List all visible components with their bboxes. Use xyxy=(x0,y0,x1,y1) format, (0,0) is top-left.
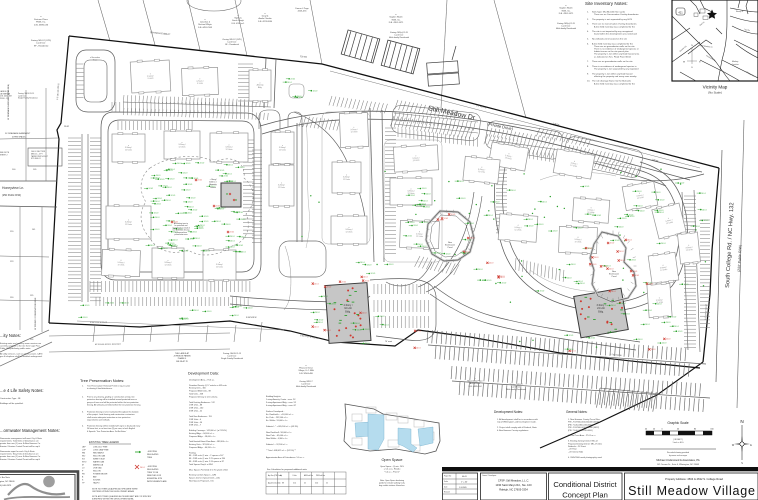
svg-text:24 LO: 24 LO xyxy=(167,187,172,189)
svg-text:9 Units: 9 Units xyxy=(197,82,203,85)
svg-text:24 LO: 24 LO xyxy=(659,210,664,212)
svg-text:du: du xyxy=(280,475,282,477)
svg-text:Single Family Residence: Single Family Residence xyxy=(18,98,38,100)
svg-text:24 LO: 24 LO xyxy=(571,264,576,266)
svg-text:12 Units: 12 Units xyxy=(574,240,581,243)
svg-text:24 LO: 24 LO xyxy=(633,271,638,273)
svg-text:Stormwater: Stormwater xyxy=(609,273,620,276)
svg-text:Public Utility Authority publi: Public Utility Authority public water. xyxy=(0,347,31,350)
svg-text:Michael Underwood & Associates: Michael Underwood & Associates, PA xyxy=(656,458,699,462)
svg-text:Stormwater: Stormwater xyxy=(445,244,456,247)
svg-text:Building Coverage - 142,000 s.: Building Coverage - 142,000 s.f. (= 212.… xyxy=(189,430,227,432)
svg-text:24 LO: 24 LO xyxy=(155,201,160,203)
svg-text:Proposed Density = 12.4 units/: Proposed Density = 12.4 units/ac. xyxy=(189,396,218,399)
svg-text:12 Units: 12 Units xyxy=(343,178,350,181)
svg-text:Zoning: MD-12 (CZD): Zoning: MD-12 (CZD) xyxy=(31,40,51,42)
svg-text:requirements and methods.: requirements and methods. xyxy=(87,419,110,422)
svg-text:Open Space - @ min. 20%: Open Space - @ min. 20% xyxy=(380,466,404,468)
svg-text:12 Units: 12 Units xyxy=(125,148,132,151)
svg-text:24 LO: 24 LO xyxy=(170,169,175,171)
svg-text:3 BR Units - 7: 3 BR Units - 7 xyxy=(189,424,201,427)
svg-text:( IN FEET ): ( IN FEET ) xyxy=(673,439,683,441)
svg-text:There are no groundwater wells: There are no groundwater wells on the si… xyxy=(594,45,635,48)
svg-text:24 LO: 24 LO xyxy=(609,268,614,270)
svg-text:Still Meadow Village: Still Meadow Village xyxy=(628,484,756,498)
svg-text:Village, LLC 4NA: Village, LLC 4NA xyxy=(298,369,314,372)
svg-text:= 5.4 ac (+ Req'd.): = 5.4 ac (+ Req'd.) xyxy=(384,469,401,471)
svg-text:24 LO: 24 LO xyxy=(85,305,90,307)
svg-text:Monkey: Monkey xyxy=(732,61,738,63)
svg-text:24 LO: 24 LO xyxy=(228,164,233,166)
svg-text:24 LO: 24 LO xyxy=(205,251,210,253)
svg-text:24 LO: 24 LO xyxy=(638,206,643,208)
svg-text:24 LO: 24 LO xyxy=(621,303,626,305)
svg-text:The site is not impacted by an: The site is not impacted by any recogniz… xyxy=(592,30,633,33)
svg-text:Existing Units - 321,400 s.f.+: Existing Units - 321,400 s.f.+- xyxy=(189,443,215,446)
svg-text:Protection fencing is to be ma: Protection fencing is to be maintained t… xyxy=(87,411,139,414)
svg-text:Approximate Area of Disturbanc: Approximate Area of Disturbance: 5.0 ac.… xyxy=(266,456,305,459)
svg-text:S 84°50'8 W: S 84°50'8 W xyxy=(246,317,257,319)
svg-text:24 LO: 24 LO xyxy=(195,238,200,240)
svg-text:A tree field inventory was com: A tree field inventory was completed for… xyxy=(592,42,634,45)
svg-text:24 LO: 24 LO xyxy=(619,251,624,253)
svg-text:24 LO: 24 LO xyxy=(417,331,422,333)
svg-text:TREE TO BE: TREE TO BE xyxy=(147,472,159,474)
svg-text:(No Scale): (No Scale) xyxy=(708,91,722,95)
svg-text:...e 4 Life Safety Notes:: ...e 4 Life Safety Notes: xyxy=(0,388,44,393)
svg-text:STD 846.01: STD 846.01 xyxy=(31,158,41,160)
svg-text:LONG LEAF PINE: LONG LEAF PINE xyxy=(93,449,109,452)
svg-text:Subtotal - * +-305,500 s: Subtotal - * +-305,500 s.f.+- (63.3%) xyxy=(266,425,298,428)
svg-text:Anelia Claudio: Anelia Claudio xyxy=(259,17,273,20)
svg-text:88 - 3 BR units @ min. 2.26 sp: 88 - 3 BR units @ min. 2.26 spaces = 87 xyxy=(189,460,224,463)
svg-text:24 LO: 24 LO xyxy=(241,219,246,221)
svg-text:(250 Public R/W): (250 Public R/W) xyxy=(2,194,21,197)
svg-text:gas & telephone shall be insta: gas & telephone shall be installed under… xyxy=(0,355,43,358)
svg-text:Scale:: Scale: xyxy=(444,481,449,483)
svg-text:24 LO: 24 LO xyxy=(421,204,426,206)
svg-text:of the project. Land clearing: of the project. Land clearing and constr… xyxy=(87,413,135,416)
svg-text:24 LO: 24 LO xyxy=(156,203,161,205)
svg-text:Existing Bldgs. - 84,000 s.f.+: Existing Bldgs. - 84,000 s.f.+- xyxy=(189,432,215,435)
svg-text:24 LO: 24 LO xyxy=(625,314,630,316)
svg-text:24 LO: 24 LO xyxy=(585,186,590,188)
svg-text:Ex. Walks - 55,000: Ex. Walks - 55,000 s.f.+- xyxy=(266,420,288,422)
svg-text:24 LO: 24 LO xyxy=(319,320,324,322)
svg-text:D.B. W506-480: D.B. W506-480 xyxy=(299,373,314,375)
svg-text:TIDN, Inc.: TIDN, Inc. xyxy=(561,10,571,12)
svg-text:24 LO: 24 LO xyxy=(423,200,428,202)
svg-text:24 LO: 24 LO xyxy=(239,245,244,247)
svg-text:24 LO: 24 LO xyxy=(357,330,362,332)
svg-text:24 LO: 24 LO xyxy=(363,277,368,279)
svg-text:REMOVED FOR: REMOVED FOR xyxy=(147,475,162,477)
svg-text:24 LO: 24 LO xyxy=(495,202,500,204)
svg-text:24 LO: 24 LO xyxy=(193,209,198,211)
svg-text:24 LO: 24 LO xyxy=(216,206,221,208)
svg-text:12 Units: 12 Units xyxy=(125,223,132,226)
svg-text:24 LO: 24 LO xyxy=(224,176,229,178)
svg-text:24 LO: 24 LO xyxy=(150,245,155,247)
svg-text:RM: RM xyxy=(82,453,85,455)
svg-text:Open Space: Open Space xyxy=(381,458,402,462)
svg-text:24 LO: 24 LO xyxy=(410,222,415,224)
svg-text:Saylors Watch: Saylors Watch xyxy=(559,7,573,10)
svg-text:24 LO: 24 LO xyxy=(597,215,602,217)
svg-text:The property is not separated: The property is not separated by any reg… xyxy=(594,68,639,71)
svg-text:24 LO: 24 LO xyxy=(487,280,492,282)
svg-text:24 LO: 24 LO xyxy=(489,263,494,265)
svg-text:Pond: Pond xyxy=(612,276,617,278)
svg-text:24 LO: 24 LO xyxy=(588,248,593,250)
svg-text:Pleasant Grove: Pleasant Grove xyxy=(299,367,314,370)
svg-text:24 LO: 24 LO xyxy=(408,236,413,238)
svg-text:1. All development shall be: 1. All development shall be in accordanc… xyxy=(497,418,538,421)
svg-text:WO: WO xyxy=(82,456,86,458)
svg-text:24 LO: 24 LO xyxy=(216,221,221,223)
svg-text:by owner and surveyor: by owner and surveyor xyxy=(669,455,688,457)
svg-text:0) 640-2879: 0) 640-2879 xyxy=(0,485,12,487)
svg-text:24 LO: 24 LO xyxy=(684,284,689,286)
svg-text:24 LO: 24 LO xyxy=(540,291,545,293)
svg-text:24 LO: 24 LO xyxy=(426,193,431,195)
svg-text:Ex. Park. - 232,500: Ex. Park. - 232,500 s.f.+- xyxy=(266,417,289,419)
svg-text:23.68': 23.68' xyxy=(64,126,70,128)
svg-text:MB 58 AT 78: MB 58 AT 78 xyxy=(176,360,188,363)
svg-text:CERTIFIED WITHIN THE DEVELOPME: CERTIFIED WITHIN THE DEVELOPMENT AREAS xyxy=(92,490,135,493)
svg-text:24 LO: 24 LO xyxy=(186,163,191,165)
svg-text:24 LO: 24 LO xyxy=(637,191,642,193)
svg-text:dog usable stations if benches: dog usable stations if benches. xyxy=(379,484,405,487)
svg-text:1 BR Units - 88: 1 BR Units - 88 xyxy=(189,404,202,407)
svg-text:0.62: 0.62 xyxy=(315,483,318,485)
svg-text:requirements. Stay limits of: requirements. Stay limits of disturbance… xyxy=(0,453,39,456)
svg-text:N: N xyxy=(740,419,743,424)
svg-text:Surface Developed -: Surface Developed - xyxy=(266,411,285,413)
svg-text:24 LO: 24 LO xyxy=(186,190,191,192)
svg-text:Revised:: Revised: xyxy=(444,492,450,494)
svg-text:Ex. Roof/walls - +-18,000: Ex. Roof/walls - +-18,000 s.f.+- xyxy=(266,414,294,416)
svg-text:24 LO: 24 LO xyxy=(331,303,336,305)
svg-text:24 LO: 24 LO xyxy=(591,338,596,340)
svg-text:24 LO: 24 LO xyxy=(672,317,677,319)
svg-text:24 LO: 24 LO xyxy=(674,326,679,328)
svg-text:Proposed Bldgs. - 60,200 s.f.+: Proposed Bldgs. - 60,200 s.f.+- xyxy=(189,447,216,449)
svg-text:24 LO: 24 LO xyxy=(230,236,235,238)
svg-text:24 LO: 24 LO xyxy=(662,343,667,345)
svg-text:...ity Notes:: ...ity Notes: xyxy=(0,333,21,338)
svg-text:Total New Bedrooms - 155: Total New Bedrooms - 155 xyxy=(189,415,212,418)
svg-text:Tree Preservation Notes:: Tree Preservation Notes: xyxy=(80,378,124,383)
svg-text:preservation area: preservation area xyxy=(174,233,187,236)
svg-text:12 Units: 12 Units xyxy=(413,159,420,162)
svg-text:SF - Residental: SF - Residental xyxy=(34,44,49,47)
svg-text:24 LO: 24 LO xyxy=(171,195,176,197)
svg-text:24 LO: 24 LO xyxy=(638,339,643,341)
svg-text:24 LO: 24 LO xyxy=(631,260,636,262)
svg-text:as indicated on N.C. Flood Pan: as indicated on N.C. Flood Panel 3134 xyxy=(594,55,631,58)
svg-text:New Roof/wall - 58,000 s.f.+-: New Roof/wall - 58,000 s.f.+- xyxy=(266,432,292,434)
svg-text:SHEET 2: SHEET 2 xyxy=(0,154,7,156)
svg-text:A tree field inventory was com: A tree field inventory was completed for… xyxy=(594,25,636,28)
svg-text:102 Cinema Dr., Suite 6, Wilmi: 102 Cinema Dr., Suite 6, Wilmington, NC … xyxy=(657,463,700,466)
svg-text:W: W xyxy=(683,62,685,64)
svg-text:Single Family Residental: Single Family Residental xyxy=(221,357,244,360)
svg-text:24 LO: 24 LO xyxy=(511,190,516,192)
svg-text:24 LO: 24 LO xyxy=(422,246,427,248)
svg-text:Tree Preservation / Removal Pe: Tree Preservation / Removal Permit is re… xyxy=(87,385,130,388)
svg-text:24 LO: 24 LO xyxy=(189,206,194,208)
svg-text:24 LO: 24 LO xyxy=(199,228,204,230)
svg-text:24 LO: 24 LO xyxy=(680,183,685,185)
svg-text:IMPROVEMENTS ARE: IMPROVEMENTS ARE xyxy=(147,480,167,483)
svg-text:D.B. 4889-344: D.B. 4889-344 xyxy=(469,386,483,388)
svg-text:Development Data:: Development Data: xyxy=(188,372,219,376)
svg-text:24 LO: 24 LO xyxy=(314,283,319,285)
svg-text:24 LO: 24 LO xyxy=(192,232,197,234)
svg-text:The site drainage flows into t: The site drainage flows into the Barnard… xyxy=(592,80,631,83)
svg-text:4223-455: 4223-455 xyxy=(298,11,308,13)
svg-text:24 LO: 24 LO xyxy=(422,188,427,190)
svg-text:shall receive adequate instruc: shall receive adequate instruction on tr… xyxy=(87,416,130,419)
svg-text:Vicinity Map: Vicinity Map xyxy=(703,85,728,90)
svg-text:24 LO: 24 LO xyxy=(702,209,707,211)
svg-text:24 LO: 24 LO xyxy=(297,96,302,98)
svg-text:Property Address: 4504 & 4632: Property Address: 4504 & 4632 S. College… xyxy=(665,477,723,481)
svg-text:Multi-family Residental: Multi-family Residental xyxy=(389,36,410,39)
svg-text:24 LO: 24 LO xyxy=(528,219,533,221)
svg-text:24 LO: 24 LO xyxy=(380,316,385,318)
svg-text:12 Units: 12 Units xyxy=(179,145,186,148)
svg-text:24 LO: 24 LO xyxy=(640,210,645,212)
svg-text:24 LO: 24 LO xyxy=(234,315,239,317)
svg-text:City of Wilmington Land Develo: City of Wilmington Land Development Code… xyxy=(497,421,537,424)
svg-text:24 LO: 24 LO xyxy=(183,173,188,175)
svg-text:Subtotal - - 92,500 s.f: Subtotal - - 92,500 s.f.+- xyxy=(266,443,288,446)
svg-text:Setbacks - 20' Front: Setbacks - 20' Front xyxy=(568,445,586,448)
svg-text:24 LO: 24 LO xyxy=(163,248,168,250)
svg-text:24 LO: 24 LO xyxy=(594,257,599,259)
svg-text:74' esmt: 74' esmt xyxy=(385,340,393,343)
svg-text:24 LO: 24 LO xyxy=(666,339,671,341)
svg-text:protection fencing will be ins: protection fencing will be installed aro… xyxy=(87,398,137,401)
svg-text:24 LO: 24 LO xyxy=(580,283,585,285)
svg-text:24 LO: 24 LO xyxy=(704,220,709,222)
svg-text:YAUPO: YAUPO xyxy=(93,482,100,485)
svg-text:Proposed Multi Units - 88: Proposed Multi Units - 88 xyxy=(189,390,211,393)
svg-text:(OPEN SPACE): (OPEN SPACE) xyxy=(12,135,26,138)
svg-text:24 LO: 24 LO xyxy=(389,264,394,266)
svg-text:24 LO: 24 LO xyxy=(589,214,594,216)
svg-text:24 LO: 24 LO xyxy=(635,275,640,277)
svg-text:t. Bar Nutz: t. Bar Nutz xyxy=(0,476,10,479)
svg-text:12 Units: 12 Units xyxy=(278,186,285,189)
svg-text:greater than one (1) acre. A: greater than one (1) acre. A New Hanover… xyxy=(0,442,41,445)
svg-text:PIN - R 07000-003-034-000 (4: PIN - R 07000-003-034-000 (4504) xyxy=(568,422,599,424)
svg-text:24 LO: 24 LO xyxy=(160,179,165,181)
svg-text:24 LO: 24 LO xyxy=(220,170,225,172)
svg-text:3-story Apartment Bldg. - max.: 3-story Apartment Bldg. - max. 53' xyxy=(266,401,297,404)
svg-text:88 - 1 BR units @ min. - 2 spa: 88 - 1 BR units @ min. - 2 spaces = 147 xyxy=(189,454,223,457)
svg-text:24 LO: 24 LO xyxy=(619,227,624,229)
svg-text:24 LO: 24 LO xyxy=(666,322,671,324)
svg-text:THE LANDS AT: THE LANDS AT xyxy=(175,352,190,355)
svg-text:24 LO: 24 LO xyxy=(645,324,650,326)
svg-text:Total Heated-Street Floor Area: Total Heated-Street Floor Area - 581,800… xyxy=(189,440,229,443)
svg-text:ESSENTIAL SITE: ESSENTIAL SITE xyxy=(147,477,163,480)
svg-text:D.B. 4223-2080: D.B. 4223-2080 xyxy=(258,21,273,23)
svg-text:All utility services, such as: All utility services, such as electric p… xyxy=(0,352,43,355)
svg-text:24 LO: 24 LO xyxy=(184,319,189,321)
svg-text:24 LO: 24 LO xyxy=(207,311,212,313)
svg-text:General Notes:: General Notes: xyxy=(566,410,588,414)
svg-text:& Spanish 'Tree Protection Are: & Spanish 'Tree Protection Area: Do Not … xyxy=(87,430,127,433)
svg-text:Bldg.: Bldg. xyxy=(258,87,263,89)
svg-text:Fortune Place: Fortune Place xyxy=(34,18,48,21)
svg-text:24 LO: 24 LO xyxy=(200,163,205,165)
svg-text:Proposed Zoning District: MD-: Proposed Zoning District: MD-17 (CD) xyxy=(568,442,602,445)
svg-text:12 Units: 12 Units xyxy=(351,130,358,133)
svg-text:POWER BRUSH: POWER BRUSH xyxy=(93,474,108,476)
svg-text:JOHNSON FARMS: JOHNSON FARMS xyxy=(173,355,191,358)
svg-text:24 LO: 24 LO xyxy=(647,310,652,312)
svg-text:24 LO: 24 LO xyxy=(170,178,175,180)
svg-text:SWEET GUM: SWEET GUM xyxy=(93,459,105,461)
svg-text:currently available to the sit: currently available to the site from Cap… xyxy=(0,345,40,348)
svg-text:24 LO: 24 LO xyxy=(190,239,195,241)
svg-text:gton, NC 28409: gton, NC 28409 xyxy=(0,480,15,483)
svg-text:04-05: 04-05 xyxy=(462,476,467,478)
svg-text:Stormwater management will mee: Stormwater management will meet City & S… xyxy=(0,437,43,440)
svg-text:24 LO: 24 LO xyxy=(230,247,235,249)
svg-text:EXISTING TREE LEGEND: EXISTING TREE LEGEND xyxy=(89,441,119,444)
svg-text:D.B. 4391-1471: D.B. 4391-1471 xyxy=(389,22,404,24)
svg-text:1 inch = 40 ft: 1 inch = 40 ft xyxy=(673,441,684,444)
svg-text:Max. Spaces Permitted @ 0.75 s: Max. Spaces Permitted @ 0.75 sp/unit = 8… xyxy=(189,468,228,471)
svg-text:1-story Amenity Center - max.: 1-story Amenity Center - max. 20' xyxy=(266,398,296,401)
svg-text:WILLOW OAK: WILLOW OAK xyxy=(93,455,106,458)
svg-text:24 LO: 24 LO xyxy=(661,243,666,245)
svg-text:1330 Saint Marys Rd., Ste. 100: 1330 Saint Marys Rd., Ste. 100 xyxy=(495,483,532,487)
svg-text:12 Units: 12 Units xyxy=(279,148,286,151)
svg-text:D.B. 4391-1471: D.B. 4391-1471 xyxy=(559,13,574,15)
svg-text:PIN - R 07000-003-035-000 (: PIN - R 07000-003-035-000 (4632) xyxy=(568,427,599,429)
svg-text:24 LO: 24 LO xyxy=(611,291,616,293)
svg-text:24 LO: 24 LO xyxy=(362,313,367,315)
svg-text:24 LO: 24 LO xyxy=(184,250,189,252)
svg-text:New Park. - 65,000 s.f.+: New Park. - 65,000 s.f.+- xyxy=(266,435,289,437)
svg-text:affecting the property and eve: affecting the property and every zone ne… xyxy=(594,75,637,78)
svg-text:24 LO: 24 LO xyxy=(342,281,347,283)
svg-text:24 LO: 24 LO xyxy=(612,332,617,334)
svg-text:Conditional District: Conditional District xyxy=(553,480,617,489)
svg-text:24 LO: 24 LO xyxy=(241,236,246,238)
svg-text:10.: 10. xyxy=(587,81,590,83)
svg-text:12 Units: 12 Units xyxy=(514,228,521,231)
svg-text:Recorded drawing provided: Recorded drawing provided xyxy=(667,452,689,454)
svg-text:24 LO: 24 LO xyxy=(163,186,168,188)
svg-text:Existing Controls Spaces - 42M: Existing Controls Spaces - 42M xyxy=(189,474,216,477)
svg-text:24 LO: 24 LO xyxy=(413,225,418,227)
svg-text:24 LO: 24 LO xyxy=(226,224,231,226)
svg-text:There are no Conservation Over: There are no Conservation Overlay bounda… xyxy=(592,23,637,26)
svg-text:24 LO: 24 LO xyxy=(578,281,583,283)
svg-text:24 LO: 24 LO xyxy=(425,206,430,208)
svg-text:WATER OAK: WATER OAK xyxy=(93,461,105,464)
svg-text:0.51: 0.51 xyxy=(293,483,296,485)
svg-text:12 Units: 12 Units xyxy=(165,263,172,266)
svg-text:24 LO: 24 LO xyxy=(622,218,627,220)
svg-text:24 LO: 24 LO xyxy=(200,225,205,227)
svg-text:24 LO: 24 LO xyxy=(355,323,360,325)
svg-text:3 BR Units - 52: 3 BR Units - 52 xyxy=(189,410,202,413)
svg-text:MAGNOLIA: MAGNOLIA xyxy=(93,464,104,467)
svg-text:24 LO: 24 LO xyxy=(154,213,159,215)
svg-text:to clearing & land disturbance: to clearing & land disturbance. xyxy=(87,387,113,390)
svg-text:PHASE 4: PHASE 4 xyxy=(178,357,187,360)
svg-text:Protection fencing will be ins: Protection fencing will be installed wit… xyxy=(87,425,140,428)
svg-text:24 LO: 24 LO xyxy=(237,306,242,308)
svg-text:The property is not within any: The property is not within any flood haz… xyxy=(592,72,633,75)
svg-text:1 BR Units - 4: 1 BR Units - 4 xyxy=(189,418,202,421)
svg-text:24 LO: 24 LO xyxy=(318,322,323,324)
svg-text:24 LO: 24 LO xyxy=(365,329,370,331)
svg-text:RED MAPLE: RED MAPLE xyxy=(93,452,105,455)
svg-text:24 LO: 24 LO xyxy=(500,276,505,278)
svg-text:24 LO: 24 LO xyxy=(569,335,574,337)
svg-text:24 LO: 24 LO xyxy=(287,82,292,84)
svg-text:24 LO: 24 LO xyxy=(436,253,441,255)
svg-text:24 LO: 24 LO xyxy=(592,264,597,266)
svg-text:24 LO: 24 LO xyxy=(211,186,216,188)
svg-text:24 LO: 24 LO xyxy=(315,312,320,314)
svg-text:24 LO: 24 LO xyxy=(478,269,483,271)
svg-text:421: 421 xyxy=(678,10,683,14)
svg-text:D.B. 4556 w-1: D.B. 4556 w-1 xyxy=(232,23,246,25)
svg-text:24 LO: 24 LO xyxy=(651,349,656,351)
svg-text:24 LO: 24 LO xyxy=(416,348,421,350)
svg-text:& New Hanover County regulatio: & New Hanover County regulations. xyxy=(497,429,529,432)
svg-text:24 LO: 24 LO xyxy=(291,79,296,81)
svg-text:Construction Type - 5B: Construction Type - 5B xyxy=(0,397,21,400)
svg-text:24 LO: 24 LO xyxy=(231,181,236,183)
svg-text:Jonathue &: Jonathue & xyxy=(200,21,211,24)
svg-text:Raleigh, NC 27605-3334: Raleigh, NC 27605-3334 xyxy=(499,488,528,492)
svg-text:Permitted Density @ 17 units/a: Permitted Density @ 17 units/ac = 459 un… xyxy=(189,384,227,387)
svg-text:There are no groundwater wells: There are no groundwater wells on the si… xyxy=(592,60,633,63)
svg-text:50 linear feet, or as least tw: 50 linear feet, or as least two (2) per … xyxy=(87,427,135,430)
svg-text:50' DRAINAGE EASEMENT (LONG ID: 50' DRAINAGE EASEMENT (LONG IDEA) xyxy=(7,84,10,120)
svg-text:24 LO: 24 LO xyxy=(173,245,178,247)
svg-text:24 LO: 24 LO xyxy=(469,223,474,225)
svg-text:2. Project shall comply with: 2. Project shall comply with all Federal… xyxy=(497,426,538,429)
svg-text:24 LO: 24 LO xyxy=(620,260,625,262)
svg-text:D.B. 4455-2343: D.B. 4455-2343 xyxy=(198,27,213,29)
svg-text:SOURIS: SOURIS xyxy=(93,480,101,482)
svg-text:LIVE OAK: LIVE OAK xyxy=(93,467,102,470)
svg-text:New Spaces Proposed - 155: New Spaces Proposed - 155 xyxy=(189,481,214,483)
svg-text:(PID 71-06-0300-034-0000): (PID 71-06-0300-034-0000) xyxy=(568,424,593,426)
svg-text:24 LO: 24 LO xyxy=(155,217,160,219)
svg-text:60' Private Access Easement: 60' Private Access Easement xyxy=(95,343,121,346)
svg-text:24 LO: 24 LO xyxy=(446,253,451,255)
svg-text:WTO: WTO xyxy=(82,462,87,464)
svg-text:Spaces lost for improvements -: Spaces lost for improvements - (13) xyxy=(189,477,220,480)
svg-text:9 Units: 9 Units xyxy=(148,77,154,80)
svg-text:REGULATED: REGULATED xyxy=(147,453,159,456)
svg-text:Existing Units - 300: Existing Units - 300 xyxy=(189,387,206,390)
svg-text:Total Units - 358: Total Units - 358 xyxy=(189,393,203,396)
